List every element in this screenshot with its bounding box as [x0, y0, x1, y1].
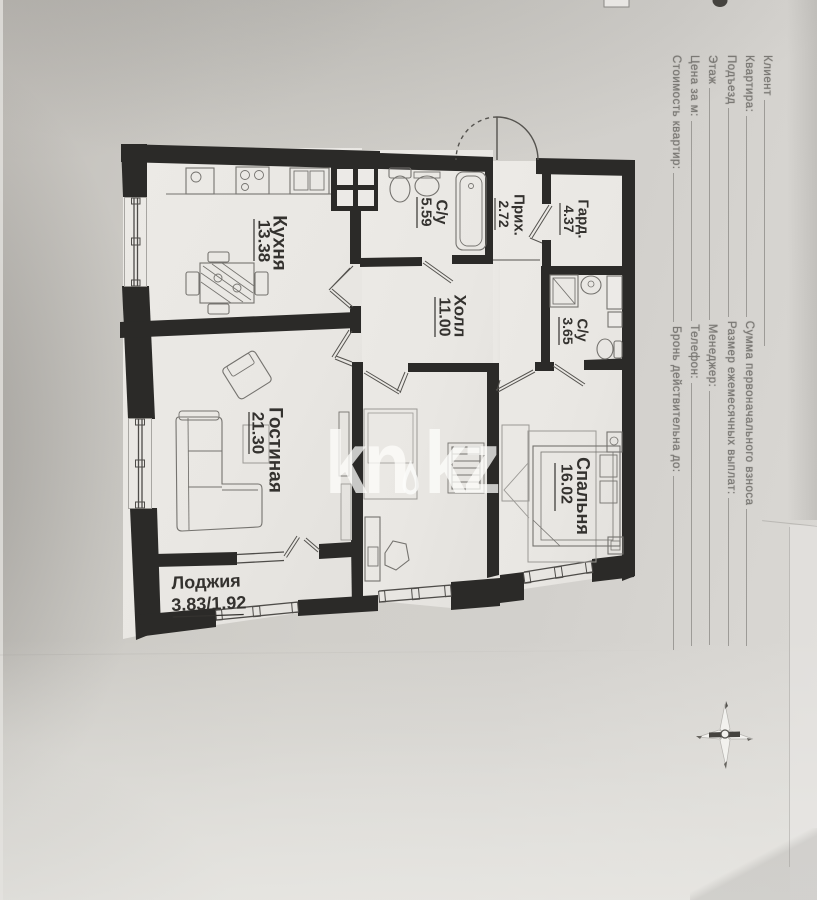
svg-text:Лоджия: Лоджия [171, 571, 241, 593]
svg-text:13.38: 13.38 [255, 220, 274, 263]
svg-text:4.37: 4.37 [561, 205, 577, 232]
svg-text:3.83/1.92: 3.83/1.92 [171, 592, 247, 615]
svg-text:2.72: 2.72 [496, 200, 512, 227]
svg-text:21.30: 21.30 [249, 412, 268, 455]
svg-text:16.02: 16.02 [558, 464, 575, 504]
svg-text:5.59: 5.59 [418, 197, 435, 226]
svg-text:11.00: 11.00 [436, 297, 453, 336]
svg-text:Спальня: Спальня [573, 457, 593, 535]
svg-text:3.65: 3.65 [560, 317, 576, 344]
svg-text:Прих.: Прих. [511, 194, 528, 236]
